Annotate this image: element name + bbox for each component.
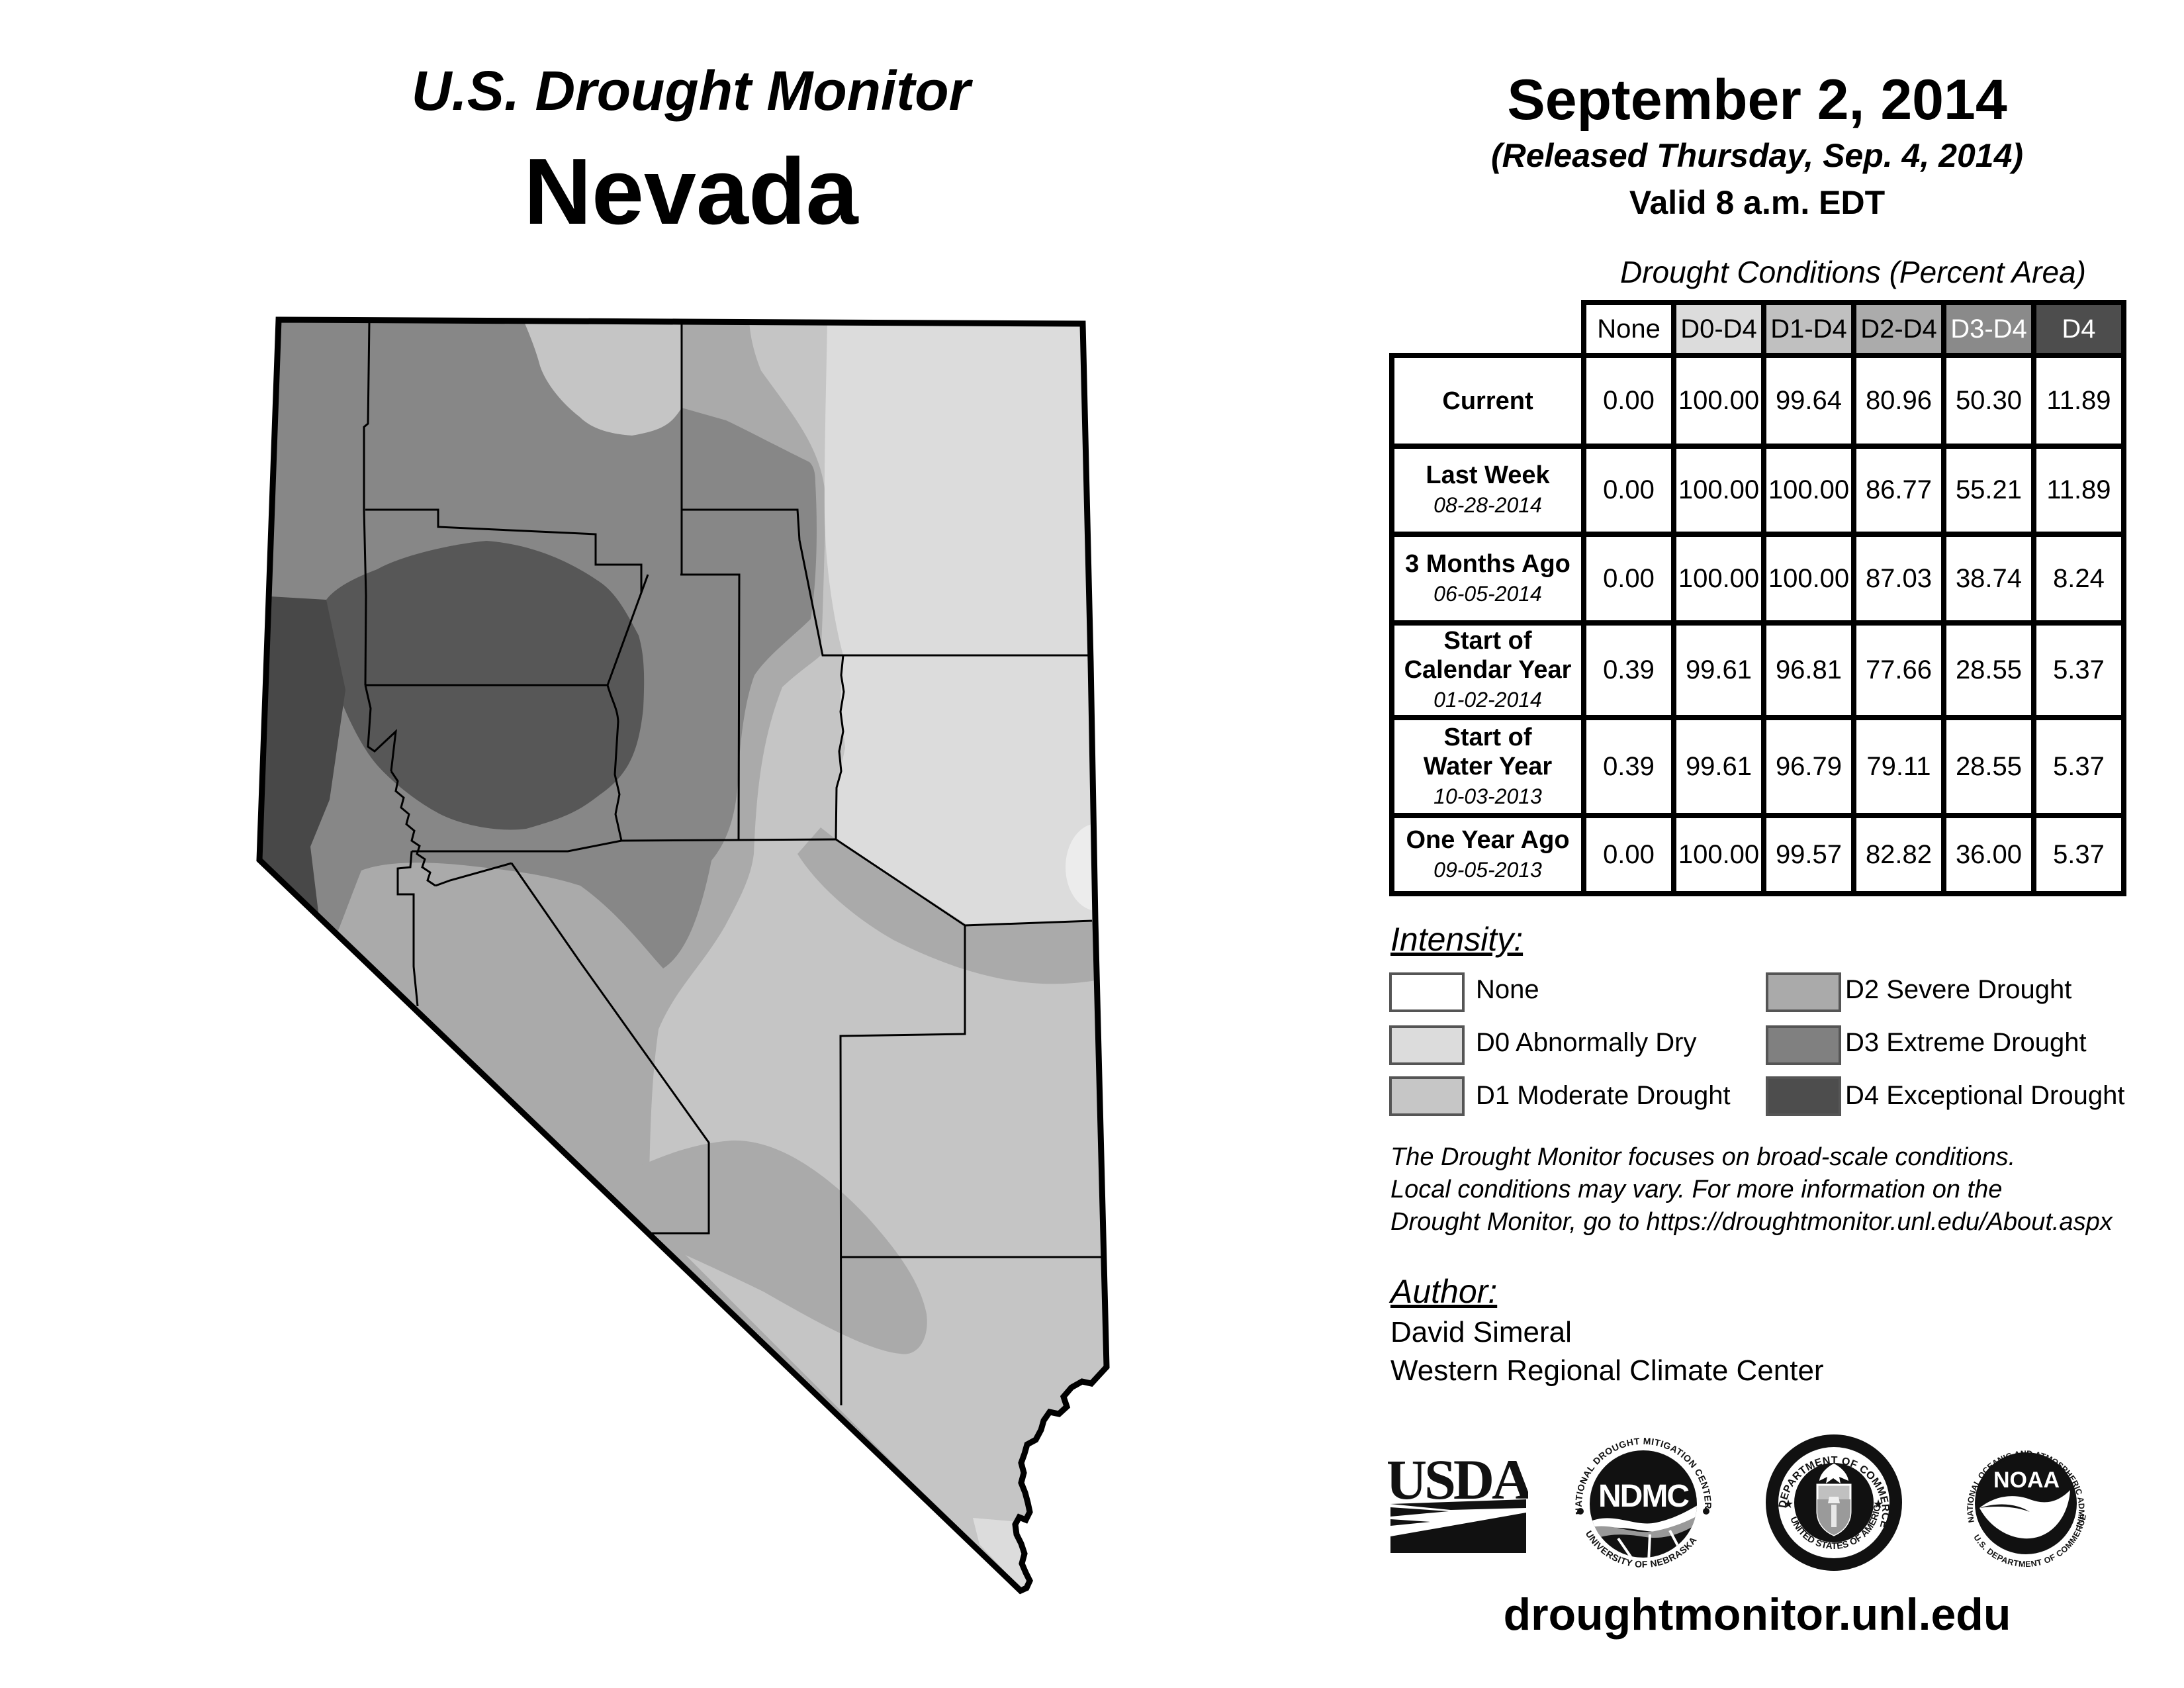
- svg-text:★: ★: [1783, 1497, 1794, 1511]
- svg-text:NOAA: NOAA: [1993, 1468, 2060, 1493]
- svg-text:★: ★: [1873, 1497, 1884, 1511]
- svg-text:NDMC: NDMC: [1598, 1479, 1689, 1514]
